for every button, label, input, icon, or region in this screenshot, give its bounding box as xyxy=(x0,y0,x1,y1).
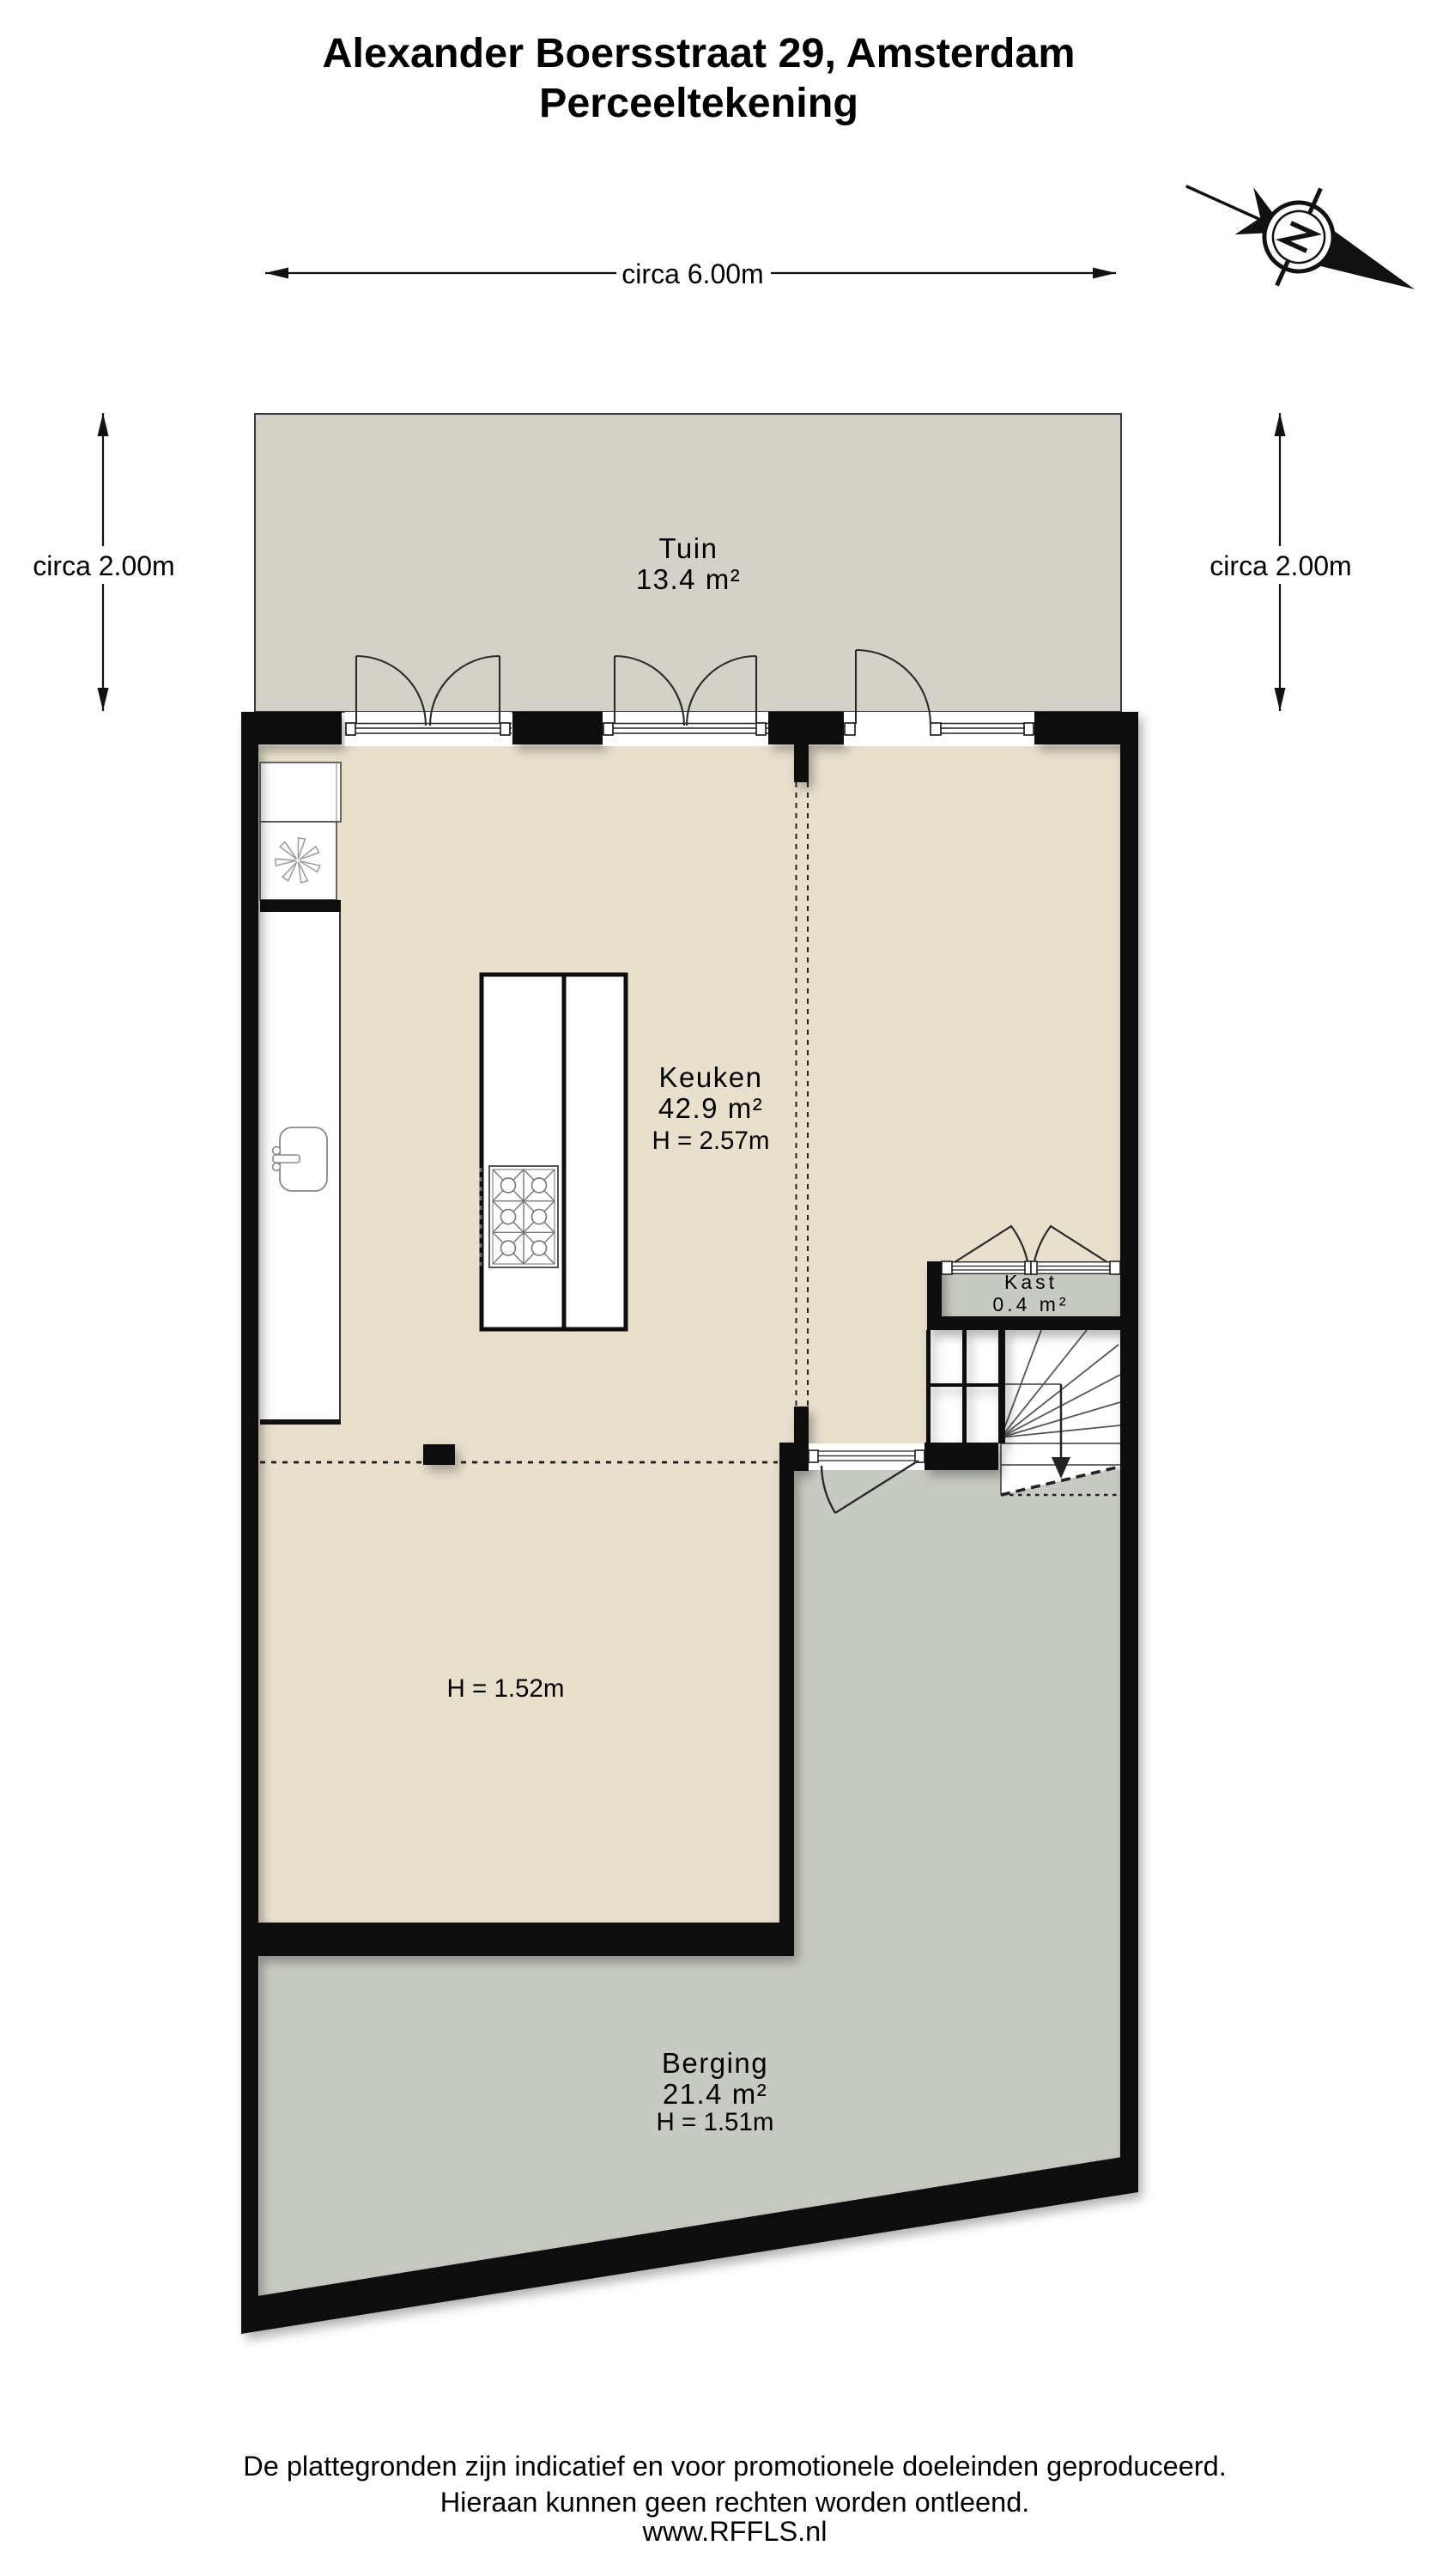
svg-text:circa 2.00m: circa 2.00m xyxy=(1210,550,1351,581)
svg-text:www.RFFLS.nl: www.RFFLS.nl xyxy=(642,2516,828,2547)
svg-text:Tuin: Tuin xyxy=(659,532,718,564)
svg-text:21.4 m²: 21.4 m² xyxy=(663,2078,767,2110)
svg-text:circa 6.00m: circa 6.00m xyxy=(621,258,763,289)
svg-text:Hieraan kunnen geen rechten wo: Hieraan kunnen geen rechten worden ontle… xyxy=(440,2487,1030,2518)
svg-text:Kast: Kast xyxy=(1004,1271,1058,1293)
svg-text:H = 1.52m: H = 1.52m xyxy=(447,1674,565,1703)
svg-text:Berging: Berging xyxy=(662,2047,768,2079)
svg-text:De plattegronden zijn indicati: De plattegronden zijn indicatief en voor… xyxy=(243,2451,1227,2482)
svg-text:circa 2.00m: circa 2.00m xyxy=(33,550,174,581)
svg-text:H = 2.57m: H = 2.57m xyxy=(652,1127,770,1155)
svg-text:13.4 m²: 13.4 m² xyxy=(636,563,741,595)
svg-text:42.9 m²: 42.9 m² xyxy=(658,1092,763,1124)
svg-text:0.4 m²: 0.4 m² xyxy=(992,1293,1069,1315)
svg-text:Keuken: Keuken xyxy=(659,1061,763,1093)
svg-text:H = 1.51m: H = 1.51m xyxy=(657,2108,774,2136)
svg-text:Perceeltekening: Perceeltekening xyxy=(539,80,858,126)
svg-text:Alexander Boersstraat 29, Amst: Alexander Boersstraat 29, Amsterdam xyxy=(323,30,1076,76)
